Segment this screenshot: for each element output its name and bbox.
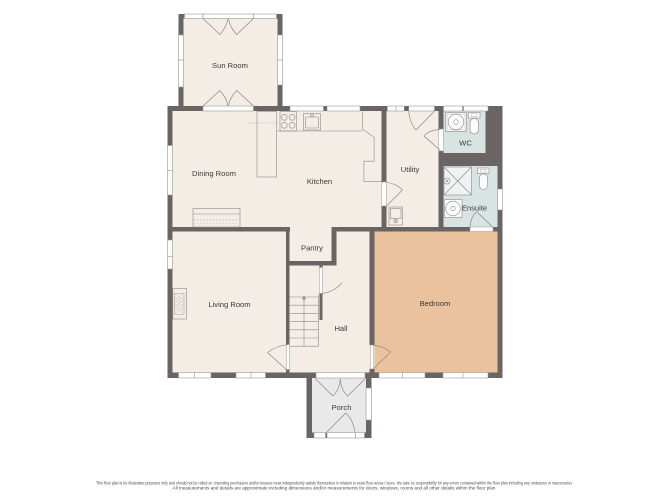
svg-text:Utility: Utility bbox=[401, 165, 420, 174]
svg-text:Pantry: Pantry bbox=[301, 243, 323, 252]
svg-text:Bedroom: Bedroom bbox=[420, 299, 451, 308]
svg-text:All measurements and details a: All measurements and details are approxi… bbox=[173, 486, 497, 491]
svg-text:Sun Room: Sun Room bbox=[212, 61, 248, 70]
svg-text:WC: WC bbox=[459, 138, 472, 147]
svg-text:Kitchen: Kitchen bbox=[307, 177, 332, 186]
svg-text:Dining Room: Dining Room bbox=[192, 169, 236, 178]
svg-text:Porch: Porch bbox=[332, 403, 352, 412]
svg-text:Hall: Hall bbox=[334, 324, 347, 333]
svg-text:Living Room: Living Room bbox=[208, 300, 250, 309]
svg-text:Ensuite: Ensuite bbox=[462, 204, 487, 213]
